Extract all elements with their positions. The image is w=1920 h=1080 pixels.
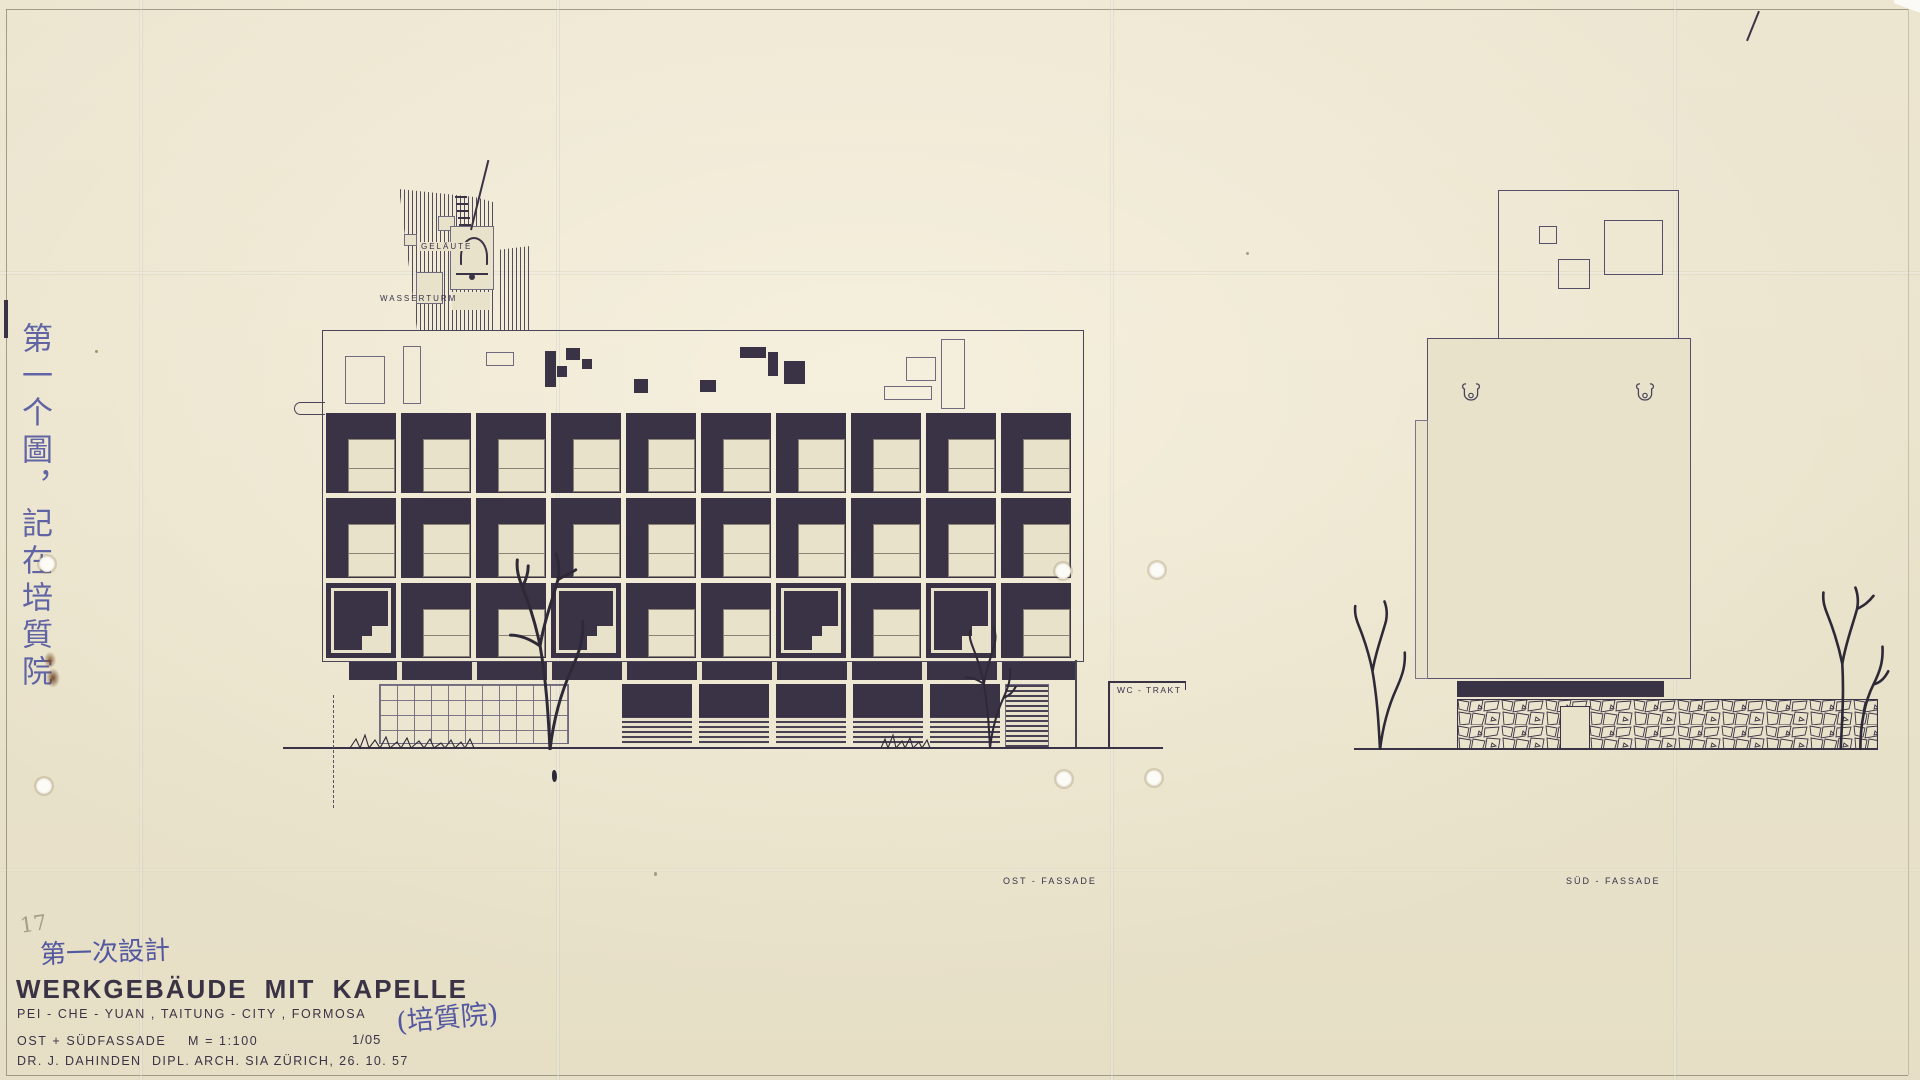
south-tower-opening	[1539, 226, 1557, 244]
window-mullion	[799, 553, 844, 554]
storefront-louver	[622, 716, 692, 744]
window-mullion	[649, 553, 694, 554]
tower-opening	[452, 292, 490, 310]
window-mullion	[424, 635, 469, 636]
attic-opening-outline	[403, 346, 421, 404]
tower-opening	[404, 234, 417, 246]
window-mullion	[424, 553, 469, 554]
grass-tuft-sketch	[878, 730, 938, 750]
south-tower-opening	[1604, 220, 1663, 275]
window-module	[1001, 413, 1071, 493]
square-motif-window	[812, 626, 839, 651]
attic-opening-outline	[345, 356, 385, 404]
views-label: OST + SÜDFASSADE	[17, 1034, 166, 1048]
window-module	[851, 413, 921, 493]
window-module	[551, 413, 621, 493]
window-pane	[873, 609, 920, 657]
window-pane	[948, 524, 995, 577]
attic-opening-filled	[768, 352, 778, 376]
window-mullion	[874, 553, 919, 554]
square-motif-dot	[362, 626, 372, 636]
spandrel-mullion	[472, 662, 477, 680]
attic-opening-filled	[784, 361, 805, 384]
window-module	[401, 583, 471, 658]
attic-opening-filled	[545, 351, 556, 387]
window-pane	[348, 439, 395, 492]
sheet-title: WERKGEBÄUDE MIT KAPELLE	[16, 974, 468, 1005]
window-mullion	[424, 468, 469, 469]
window-mullion	[1024, 553, 1069, 554]
window-module	[851, 583, 921, 658]
ost-fassade-label: OST - FASSADE	[1003, 876, 1097, 886]
margin-ink-dash	[4, 300, 8, 338]
architectural-drawing-sheet: GELÄUTE WASSERTURM WC - TRAKT OST - FASS…	[0, 0, 1920, 1080]
window-module	[701, 498, 771, 578]
window-pane	[948, 439, 995, 492]
window-pane	[798, 524, 845, 577]
margin-line-top	[6, 9, 1908, 10]
window-pane	[573, 439, 620, 492]
window-pane	[723, 524, 770, 577]
bell-clapper	[469, 274, 475, 280]
ladder-rung	[458, 217, 470, 219]
wc-trakt-outline-right	[1185, 681, 1187, 690]
window-module	[626, 583, 696, 658]
gelaeute-label: GELÄUTE	[419, 242, 474, 251]
punch-hole	[1055, 563, 1071, 579]
window-module	[776, 583, 846, 658]
tree-sketch	[1336, 600, 1424, 750]
attic-opening-outline	[884, 386, 932, 400]
storefront-bay	[776, 684, 846, 746]
storefront-glazing	[622, 684, 692, 717]
attic-opening-filled	[634, 379, 648, 393]
storefront-glazing	[853, 684, 923, 717]
window-pane	[723, 439, 770, 492]
fold-crease	[139, 0, 143, 1080]
fold-crease-horizontal	[0, 868, 1920, 872]
margin-line-right	[1908, 9, 1909, 1075]
punch-hole	[39, 556, 55, 572]
window-pane	[648, 609, 695, 657]
window-module	[326, 583, 396, 658]
attic-opening-filled	[740, 347, 766, 358]
scale-label: M = 1:100	[188, 1034, 258, 1048]
wc-trakt-outline-top	[1108, 681, 1186, 683]
margin-line-bottom	[6, 1075, 1908, 1076]
window-mullion	[949, 468, 994, 469]
south-plinth-band	[1457, 681, 1664, 697]
attic-opening-filled	[557, 366, 567, 377]
window-pane	[423, 439, 470, 492]
window-module	[776, 498, 846, 578]
storefront-glazing	[776, 684, 846, 717]
attic-opening-filled	[700, 380, 716, 392]
storefront-louver	[699, 716, 769, 744]
window-pane	[498, 439, 545, 492]
ladder-rung	[457, 210, 469, 212]
window-mullion	[874, 635, 919, 636]
attic-opening-filled	[582, 359, 592, 369]
spandrel-mullion	[772, 662, 777, 680]
window-module	[926, 413, 996, 493]
window-module	[776, 413, 846, 493]
window-pane	[348, 524, 395, 577]
tree-sketch	[940, 626, 1040, 748]
window-mullion	[349, 468, 394, 469]
window-pane	[723, 609, 770, 657]
wasserturm-label: WASSERTURM	[380, 294, 457, 303]
window-module	[926, 498, 996, 578]
bell-opening-icon	[1460, 381, 1482, 405]
sheet-number: 1/05	[352, 1032, 381, 1047]
storefront-louver	[776, 716, 846, 744]
window-mullion	[874, 468, 919, 469]
window-mullion	[574, 468, 619, 469]
margin-line-left	[6, 9, 7, 1075]
window-module	[701, 583, 771, 658]
shrub-sketch	[348, 726, 513, 750]
attic-opening-outline	[906, 357, 936, 381]
window-mullion	[949, 553, 994, 554]
tree-sketch	[1793, 586, 1908, 750]
architect-name: DR. J. DAHINDEN	[17, 1054, 141, 1068]
attic-opening-filled	[566, 348, 580, 360]
window-mullion	[799, 468, 844, 469]
scan-corner	[1894, 0, 1920, 16]
fold-tear-speck	[552, 770, 557, 782]
punch-hole	[1146, 770, 1162, 786]
punch-hole	[1149, 562, 1165, 578]
entrance-canopy	[294, 402, 325, 415]
south-tower-opening	[1558, 259, 1590, 289]
punch-hole	[36, 778, 52, 794]
axis-line	[333, 695, 334, 808]
paper-speck	[654, 872, 657, 876]
punch-hole	[1056, 771, 1072, 787]
bell-chamber	[450, 226, 494, 290]
spandrel-mullion	[397, 662, 402, 680]
window-mullion	[649, 635, 694, 636]
fold-crease	[1110, 0, 1114, 1080]
window-module	[326, 498, 396, 578]
architect-credentials: DIPL. ARCH. SIA ZÜRICH, 26. 10. 57	[152, 1054, 409, 1068]
window-mullion	[499, 468, 544, 469]
design-note-handwritten: 第一次設計	[39, 930, 170, 972]
window-mullion	[349, 553, 394, 554]
storefront-bay	[622, 684, 692, 746]
south-door	[1560, 706, 1590, 750]
sued-fassade-label: SÜD - FASSADE	[1566, 876, 1661, 886]
spandrel-mullion	[922, 662, 927, 680]
ladder-rung	[455, 196, 467, 198]
window-module	[401, 413, 471, 493]
paper-speck	[1246, 252, 1249, 255]
window-module	[326, 413, 396, 493]
wc-trakt-outline-left	[1108, 681, 1110, 748]
tree-sketch	[500, 552, 600, 750]
window-pane	[648, 439, 695, 492]
attic-opening-outline	[941, 339, 965, 409]
window-pane	[873, 439, 920, 492]
paper-speck	[95, 350, 98, 353]
window-module	[401, 498, 471, 578]
window-pane	[423, 524, 470, 577]
window-module	[476, 413, 546, 493]
sheet-subtitle: PEI - CHE - YUAN , TAITUNG - CITY , FORM…	[17, 1007, 366, 1021]
storefront-glazing	[699, 684, 769, 717]
ladder-rung	[456, 203, 468, 205]
window-pane	[798, 439, 845, 492]
spandrel-mullion	[622, 662, 627, 680]
pen-check-mark	[1746, 11, 1760, 41]
storefront-bay	[699, 684, 769, 746]
window-pane	[648, 524, 695, 577]
window-module	[701, 413, 771, 493]
spandrel-mullion	[847, 662, 852, 680]
window-pane	[423, 609, 470, 657]
rust-stain	[40, 650, 62, 692]
window-module	[626, 498, 696, 578]
window-pane	[1023, 439, 1070, 492]
window-mullion	[1024, 468, 1069, 469]
ladder-rung	[459, 224, 471, 226]
square-motif-dot	[812, 626, 822, 636]
east-facade-right-edge	[1075, 660, 1077, 748]
wc-trakt-label: WC - TRAKT	[1117, 685, 1181, 695]
window-mullion	[724, 635, 769, 636]
attic-opening-outline	[486, 352, 514, 366]
square-motif-window	[362, 626, 389, 651]
window-mullion	[649, 468, 694, 469]
window-module	[851, 498, 921, 578]
window-mullion	[724, 553, 769, 554]
window-module	[626, 413, 696, 493]
window-pane	[873, 524, 920, 577]
bell-opening-icon	[1634, 381, 1656, 405]
spandrel-mullion	[697, 662, 702, 680]
window-mullion	[724, 468, 769, 469]
